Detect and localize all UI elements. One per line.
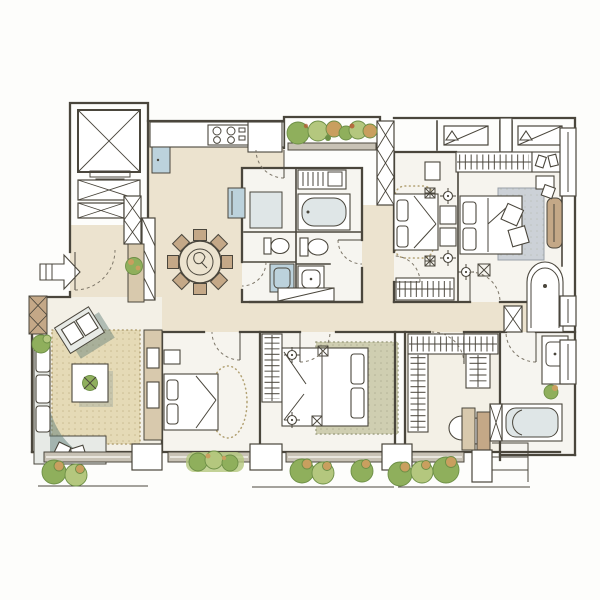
pillow: [351, 388, 364, 418]
hall-strip-floor: [362, 205, 394, 302]
appliance-cabinet: [228, 188, 245, 218]
pillow: [463, 202, 476, 224]
pillow: [397, 226, 408, 247]
pillow: [167, 404, 178, 424]
ac-unit-1: [444, 126, 488, 145]
dining-chair: [194, 230, 207, 241]
dresser-north: [425, 162, 440, 180]
foyer-plant: [126, 258, 143, 275]
living-corner-pier: [29, 296, 47, 334]
balcony-north-rail: [288, 143, 376, 150]
bed-north: [394, 194, 438, 250]
bath-vanity-shelf: [298, 170, 346, 189]
pillow: [351, 354, 364, 384]
seat-cushion: [36, 406, 50, 432]
shower: [527, 262, 563, 332]
mirror-shower-cabinet: [250, 192, 282, 228]
closet-island: [466, 354, 490, 388]
cooktop: [208, 125, 248, 145]
floor-plan-page: Hand-drawn watercolor apartment floor pl…: [0, 0, 600, 600]
master-closet-run: [456, 152, 532, 172]
toilet-main: [300, 238, 328, 256]
window-bath-east-2: [560, 340, 576, 384]
dining-chair: [168, 256, 179, 269]
bed-west: [164, 374, 218, 430]
toilet-second: [264, 238, 289, 254]
refrigerator: [152, 147, 170, 173]
nightstand: [440, 206, 456, 224]
pillow: [397, 200, 408, 221]
duct-shaft-b: [124, 196, 141, 244]
ac-unit-2: [518, 126, 562, 145]
vanity-panel: [462, 408, 475, 450]
kitchen-tall-cabinet: [248, 122, 282, 152]
bath-plant: [544, 385, 558, 399]
planter-box-bedroom-west: [186, 451, 244, 472]
pillow: [463, 228, 476, 250]
seat-cushion: [36, 375, 50, 403]
bath-storage-cabinet: [278, 288, 334, 301]
wardrobe-center: [262, 334, 282, 402]
window-bath-east-1: [560, 296, 576, 326]
refrigerator-handle: [157, 159, 159, 161]
wardrobe-north: [396, 278, 454, 300]
dining-chair: [194, 284, 207, 295]
coffee-table: [72, 364, 113, 407]
floor-plan-canvas: Hand-drawn watercolor apartment floor pl…: [0, 0, 600, 600]
tv-console: [144, 330, 162, 440]
bathtub-main: [298, 194, 350, 230]
nightstand-west: [164, 350, 180, 364]
bathtub-master: [502, 404, 562, 441]
shrub-row-center: [290, 459, 373, 484]
nightstand: [440, 228, 456, 246]
pillow: [167, 380, 178, 400]
dining-chair: [222, 256, 233, 269]
corridor-floor: [148, 302, 560, 332]
shoe-shelf: [532, 152, 562, 172]
parapet-lines: [38, 486, 530, 487]
bed-center: [282, 348, 368, 426]
niche-pier: [500, 118, 512, 152]
pier-south-1: [132, 444, 162, 470]
closet-run-left: [408, 354, 428, 432]
balcony-north-planting: [287, 121, 377, 144]
window-master-east: [560, 128, 576, 196]
pier-south-2: [250, 444, 282, 470]
balcony-north: [287, 121, 377, 150]
closet-run-top: [408, 334, 498, 354]
